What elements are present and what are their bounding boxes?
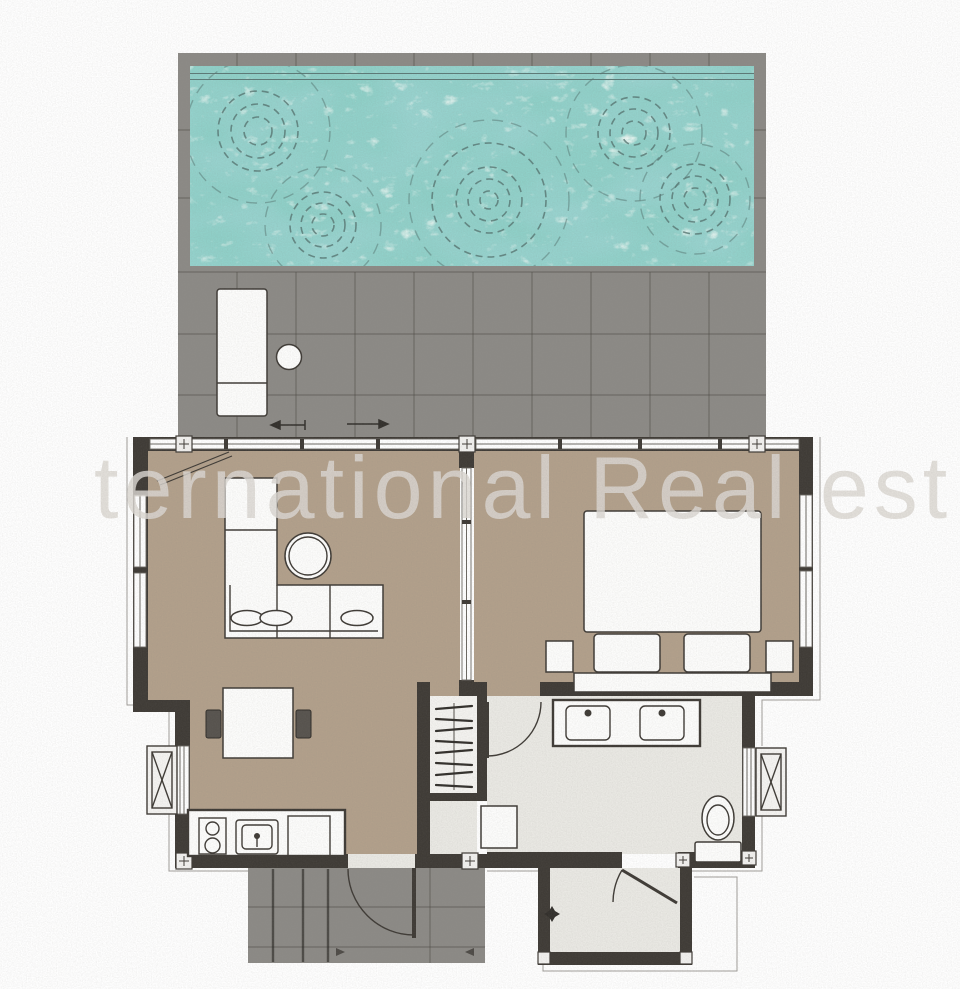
floor-plan-scan: ternational Real est bbox=[0, 0, 960, 989]
side-table bbox=[277, 345, 302, 370]
vanity bbox=[553, 700, 700, 746]
dining-chair bbox=[296, 710, 311, 738]
dining-chair bbox=[206, 710, 221, 738]
faucet-right bbox=[659, 710, 666, 717]
sun-lounger bbox=[217, 289, 267, 416]
ac-unit-left bbox=[147, 746, 177, 814]
pool-deck bbox=[178, 266, 766, 437]
wall-bed-bath-left bbox=[459, 682, 487, 696]
faucet-left bbox=[585, 710, 592, 717]
bed-headboard bbox=[574, 673, 771, 692]
coffee-table bbox=[285, 533, 331, 579]
sofa-cushion bbox=[341, 611, 373, 626]
window-kitchen-left bbox=[176, 746, 189, 814]
entry-threshold bbox=[348, 854, 415, 868]
bed-pillow-right bbox=[684, 634, 750, 672]
watermark-text: ternational Real est bbox=[94, 444, 952, 532]
pool bbox=[178, 53, 766, 283]
utility-floor bbox=[430, 798, 477, 855]
window-right-2 bbox=[800, 571, 812, 647]
sofa-cushion bbox=[231, 611, 263, 626]
bed-pillow-left bbox=[594, 634, 660, 672]
window-left-2 bbox=[134, 573, 146, 647]
dining-table bbox=[223, 688, 293, 758]
pool-water-texture bbox=[190, 66, 754, 266]
wall-shower-bottom bbox=[538, 952, 692, 965]
window-bath-right bbox=[743, 748, 755, 816]
wall-bottom-bath-left bbox=[487, 852, 622, 868]
wall-corridor bbox=[417, 682, 430, 868]
nightstand-right bbox=[766, 641, 793, 672]
shower-room-floor bbox=[550, 868, 680, 954]
ac-unit-right bbox=[756, 748, 786, 816]
nightstand-left bbox=[546, 641, 573, 672]
storage-box bbox=[481, 806, 517, 848]
wall-closet-bottom bbox=[423, 793, 487, 801]
sofa-cushion bbox=[260, 611, 292, 626]
kitchen-counter bbox=[188, 810, 345, 856]
wall-shower-right bbox=[680, 868, 692, 958]
